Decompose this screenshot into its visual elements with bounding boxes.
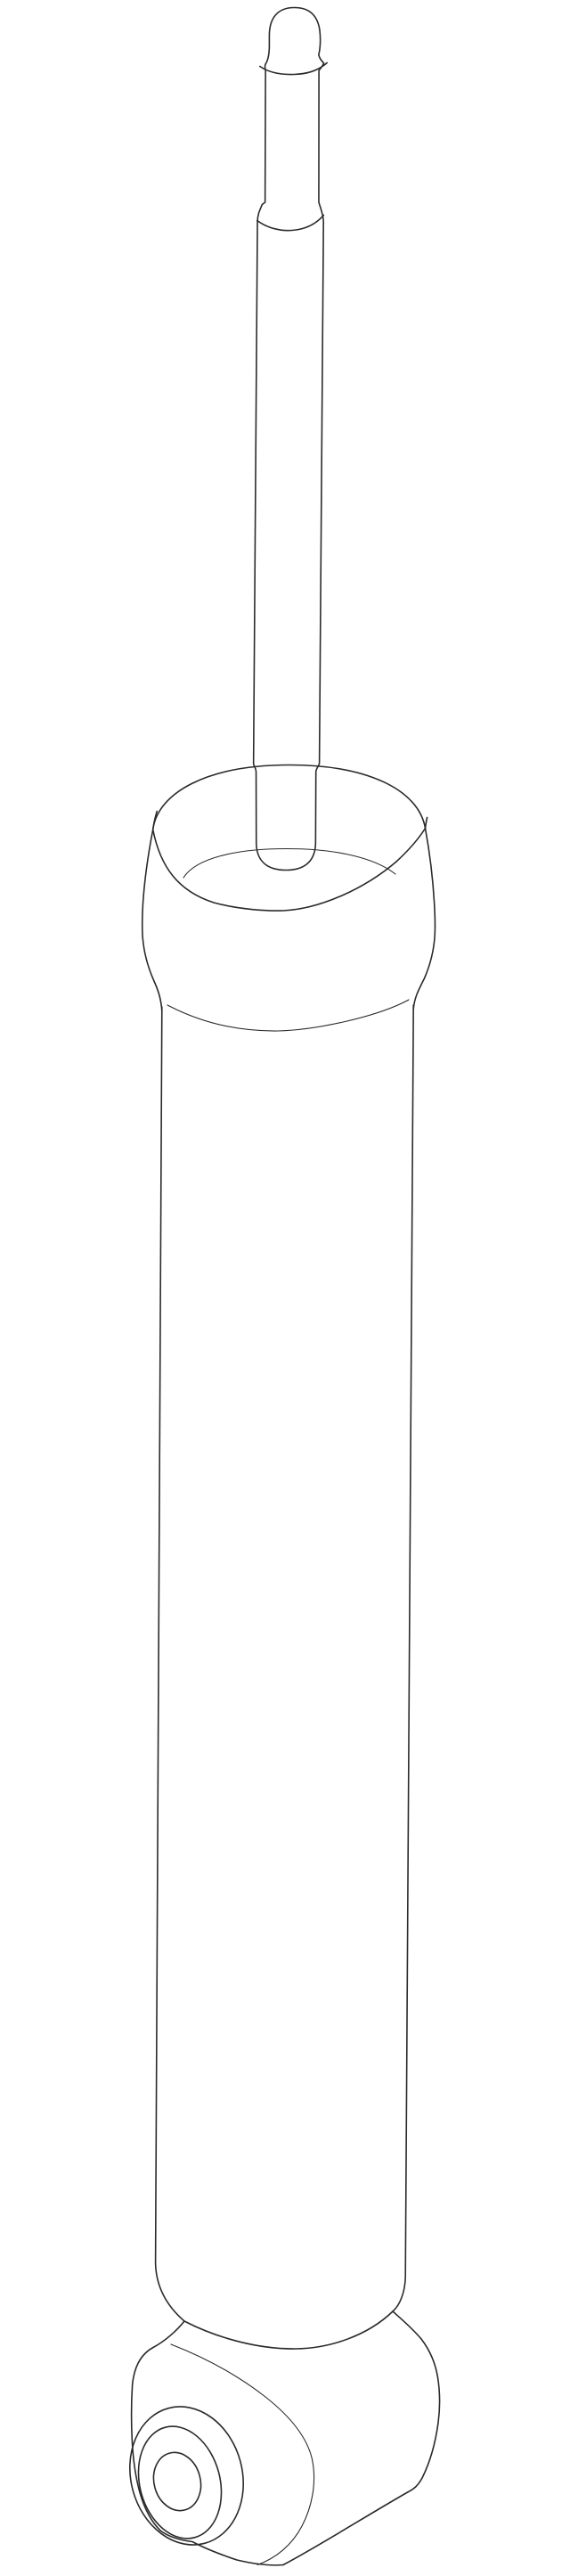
cup-back-rim (153, 765, 426, 830)
bushing-inner-ring (126, 2417, 233, 2548)
tube-left-edge (156, 1007, 184, 2321)
canvas (0, 0, 570, 2576)
eye-face-rim (171, 2344, 314, 2565)
cup-left-wall (142, 812, 162, 1012)
cup-floor (183, 849, 395, 879)
rod-tip-cap-base (260, 63, 327, 75)
rod-step (257, 216, 324, 231)
reservoir-tube (156, 1005, 414, 2349)
shock-absorber-illustration (0, 0, 570, 2576)
piston-rod (254, 8, 328, 871)
spring-seat-cup (142, 765, 436, 1032)
bushing-bore (147, 2447, 207, 2515)
rod-outline (254, 8, 324, 871)
cup-skirt-bottom (167, 1000, 409, 1031)
tube-bottom-arc (184, 2311, 393, 2349)
tube-right-edge (393, 1005, 413, 2311)
cup-right-wall (413, 818, 435, 1010)
eye-mount-right-silhouette (283, 2311, 440, 2565)
lower-eye-mount (115, 2311, 440, 2565)
